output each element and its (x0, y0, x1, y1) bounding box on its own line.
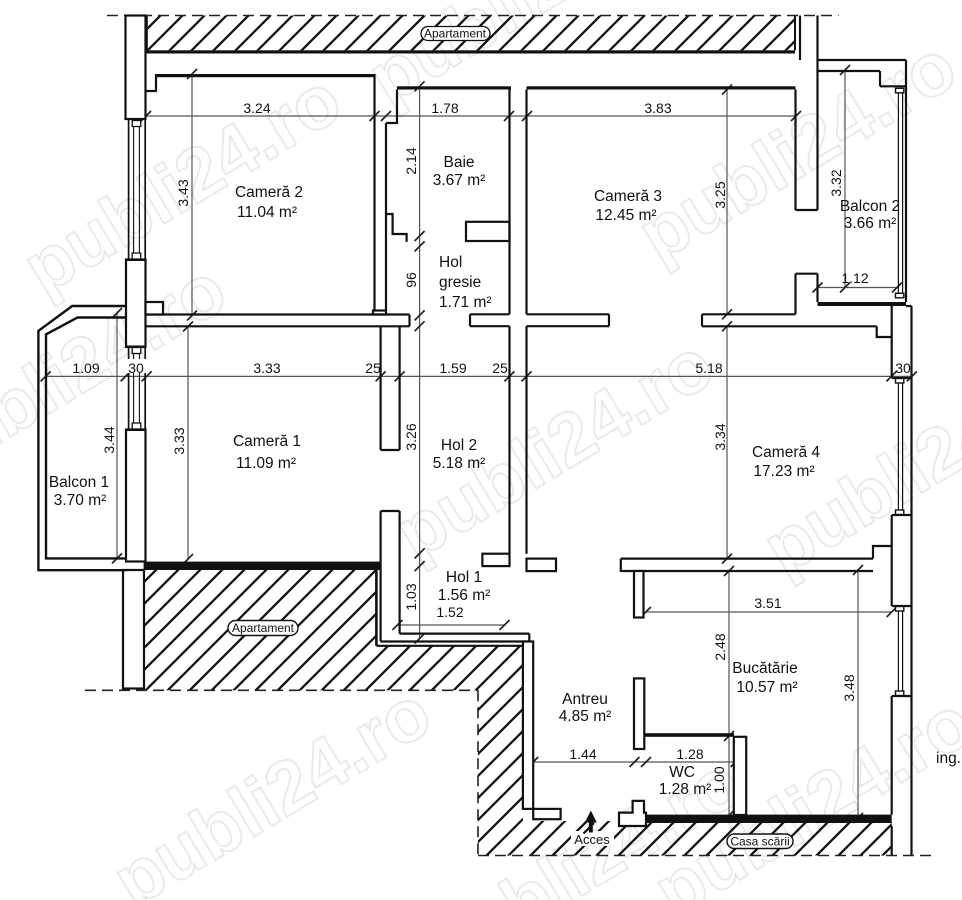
svg-text:1.28: 1.28 (676, 746, 703, 762)
svg-text:1.00: 1.00 (711, 766, 727, 793)
svg-text:1.71 m²: 1.71 m² (439, 294, 492, 311)
svg-text:Antreu: Antreu (562, 691, 608, 708)
svg-text:3.83: 3.83 (644, 100, 671, 116)
svg-text:3.51: 3.51 (754, 595, 781, 611)
svg-text:3.66 m²: 3.66 m² (844, 215, 897, 232)
svg-text:Cameră 2: Cameră 2 (235, 184, 303, 201)
svg-text:Balcon 2: Balcon 2 (840, 198, 900, 215)
svg-text:4.85 m²: 4.85 m² (559, 708, 612, 725)
svg-text:5.18: 5.18 (695, 360, 722, 376)
svg-text:1.28 m²: 1.28 m² (659, 781, 712, 798)
svg-text:25: 25 (492, 360, 508, 376)
svg-text:ing.: ing. (936, 750, 961, 767)
svg-text:3.44: 3.44 (101, 426, 117, 453)
svg-text:1.78: 1.78 (431, 100, 458, 116)
svg-text:Cameră 4: Cameră 4 (752, 444, 820, 461)
svg-text:1.52: 1.52 (436, 604, 463, 620)
svg-text:3.33: 3.33 (171, 427, 187, 454)
svg-text:1.03: 1.03 (403, 583, 419, 610)
svg-text:3.43: 3.43 (175, 179, 191, 206)
svg-text:3.67 m²: 3.67 m² (433, 172, 486, 189)
svg-text:3.32: 3.32 (828, 169, 844, 196)
svg-text:30: 30 (895, 360, 911, 376)
svg-text:Cameră 3: Cameră 3 (594, 188, 662, 205)
svg-text:30: 30 (128, 360, 144, 376)
svg-text:Apartament: Apartament (232, 621, 295, 635)
svg-text:5.18 m²: 5.18 m² (433, 455, 486, 472)
svg-text:WC: WC (669, 764, 695, 781)
svg-text:Acces: Acces (574, 832, 610, 847)
svg-text:25: 25 (365, 360, 381, 376)
svg-text:Casa scării: Casa scării (730, 835, 789, 849)
svg-text:3.24: 3.24 (243, 100, 270, 116)
svg-text:12.45 m²: 12.45 m² (595, 207, 656, 224)
svg-text:1.44: 1.44 (569, 746, 596, 762)
svg-text:3.33: 3.33 (253, 360, 280, 376)
svg-text:10.57 m²: 10.57 m² (736, 679, 797, 696)
svg-text:3.48: 3.48 (841, 674, 857, 701)
svg-text:3.34: 3.34 (712, 423, 728, 450)
svg-text:96: 96 (403, 272, 419, 288)
svg-text:1.59: 1.59 (439, 360, 466, 376)
svg-text:Cameră 1: Cameră 1 (233, 433, 301, 450)
svg-text:gresie: gresie (439, 274, 481, 291)
svg-text:11.04 m²: 11.04 m² (237, 204, 297, 221)
svg-text:Hol 1: Hol 1 (446, 569, 482, 586)
svg-text:3.25: 3.25 (712, 181, 728, 208)
svg-text:Apartament: Apartament (424, 27, 487, 41)
svg-text:3.26: 3.26 (403, 423, 419, 450)
svg-text:11.09 m²: 11.09 m² (236, 455, 296, 472)
svg-text:Balcon 1: Balcon 1 (49, 474, 109, 491)
svg-text:1.56 m²: 1.56 m² (438, 587, 491, 604)
svg-text:Bucătărie: Bucătărie (732, 660, 797, 677)
svg-text:Baie: Baie (443, 154, 474, 171)
svg-text:3.70 m²: 3.70 m² (54, 492, 107, 509)
svg-text:2.48: 2.48 (712, 633, 728, 660)
svg-text:Hol: Hol (439, 254, 462, 271)
svg-text:17.23 m²: 17.23 m² (753, 463, 814, 480)
svg-text:Hol 2: Hol 2 (441, 437, 477, 454)
svg-text:1.12: 1.12 (841, 270, 868, 286)
svg-text:2.14: 2.14 (403, 147, 419, 174)
svg-text:1.09: 1.09 (72, 360, 99, 376)
